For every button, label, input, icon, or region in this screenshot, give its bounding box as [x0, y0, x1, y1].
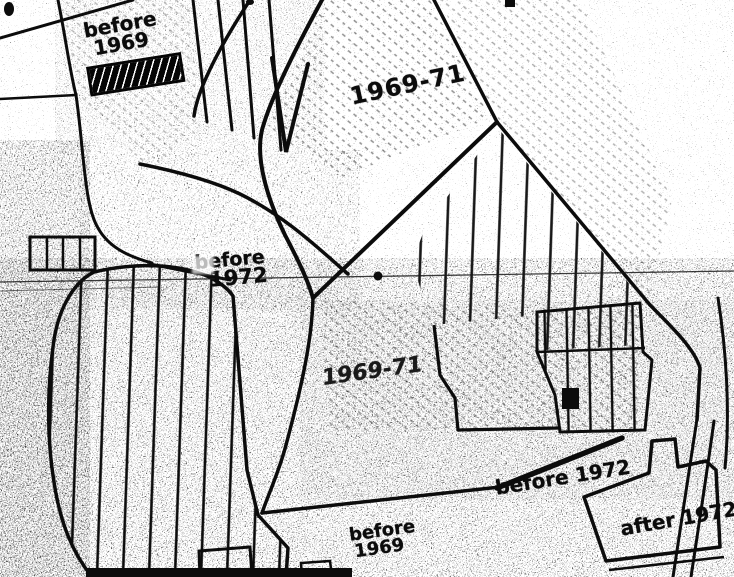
map-dot [374, 272, 383, 281]
bottom-black-bar [86, 568, 352, 577]
label-line: 1972 [209, 266, 269, 291]
scanned-map-page: before 1969 1969-71 before 1972 1969-71 … [0, 0, 734, 577]
ink-smudge [192, 256, 214, 274]
filled-block [562, 388, 579, 409]
